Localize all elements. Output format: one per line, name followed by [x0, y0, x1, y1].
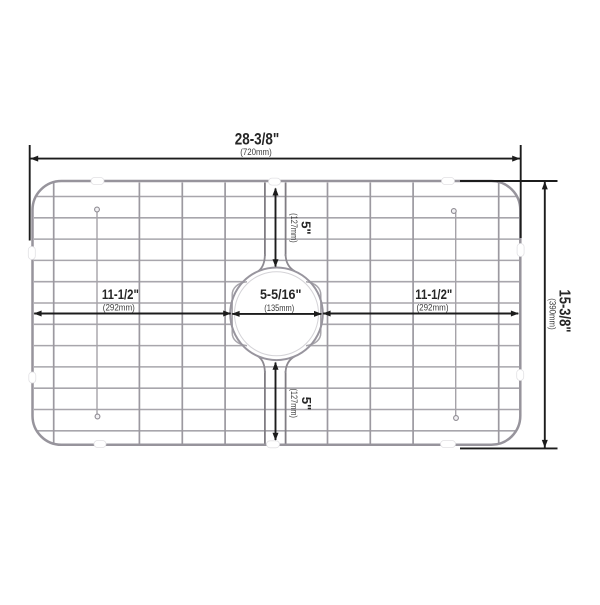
svg-text:(127mm): (127mm): [288, 388, 299, 418]
svg-text:11-1/2": 11-1/2": [102, 286, 139, 302]
svg-text:(292mm): (292mm): [103, 303, 135, 313]
svg-text:(720mm): (720mm): [240, 147, 272, 157]
svg-text:11-1/2": 11-1/2": [415, 286, 452, 302]
svg-text:5": 5": [298, 221, 313, 235]
svg-text:(390mm): (390mm): [547, 298, 557, 330]
svg-text:5": 5": [299, 397, 314, 411]
svg-text:5-5/16": 5-5/16": [260, 286, 302, 302]
svg-text:28-3/8": 28-3/8": [235, 131, 280, 149]
svg-text:(127mm): (127mm): [288, 213, 299, 243]
svg-text:(135mm): (135mm): [264, 303, 294, 313]
svg-text:(292mm): (292mm): [417, 303, 449, 313]
